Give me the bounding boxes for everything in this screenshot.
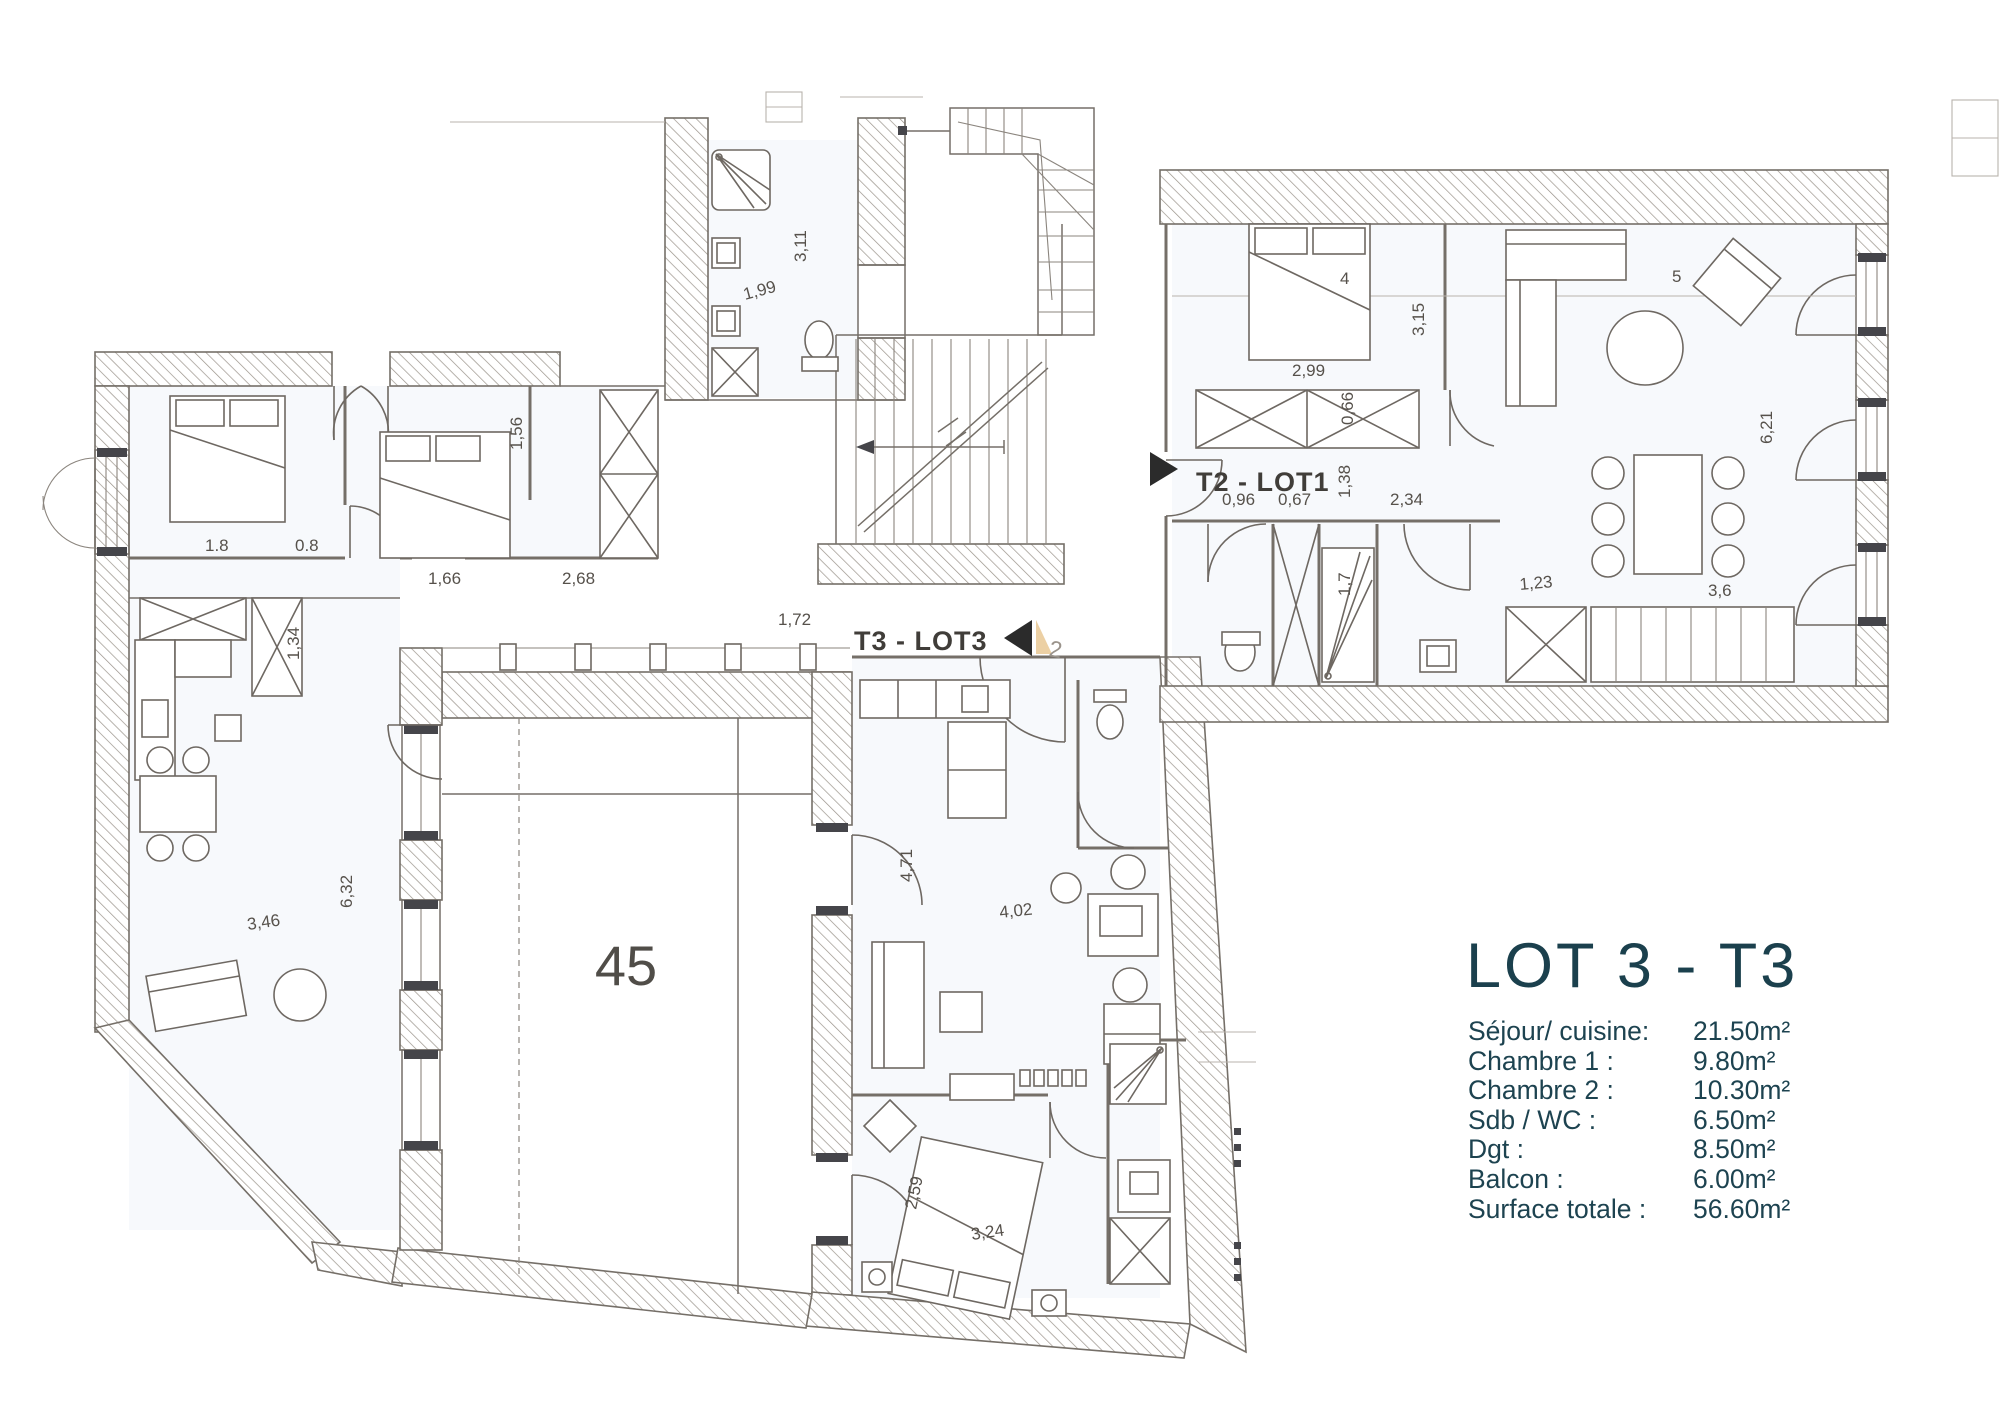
dim-bedroom1-b: 0.8 <box>295 536 319 555</box>
legend-row: Surface totale : 56.60m² <box>1468 1195 1868 1225</box>
dim-t2-bed-label: 4 <box>1340 269 1349 288</box>
hall-wardrobe <box>600 390 658 558</box>
t3-shower-room-furniture <box>1110 1044 1170 1284</box>
terrace-number: 45 <box>595 934 657 997</box>
legend-row-label: Balcon : <box>1468 1165 1693 1195</box>
dim-bedroom2-length: 1,56 <box>507 417 526 450</box>
window-terrace-wall <box>402 725 440 1150</box>
legend-row-value: 6.00m² <box>1693 1165 1863 1195</box>
dim-t3-living-length: 4,71 <box>897 849 916 882</box>
legend-row: Chambre 2 : 10.30m² <box>1468 1076 1868 1106</box>
dim-bedroom1-a: 1.8 <box>205 536 229 555</box>
legend-row: Chambre 1 : 9.80m² <box>1468 1047 1868 1077</box>
legend-row-label: Surface totale : <box>1468 1195 1693 1225</box>
legend-row-value: 56.60m² <box>1693 1195 1863 1225</box>
dim-t2-wardrobe: 0,66 <box>1338 392 1357 425</box>
dim-t2-shower: 1,7 <box>1335 572 1354 596</box>
legend-row-label: Chambre 2 : <box>1468 1076 1693 1106</box>
bedroom1-furniture <box>170 396 285 522</box>
dim-t2-room-length: 3,15 <box>1409 303 1428 336</box>
legend-row: Balcon : 6.00m² <box>1468 1165 1868 1195</box>
legend-title: LOT 3 - T3 <box>1466 930 1798 1002</box>
unit-label-t3-lot3: T3 - LOT3 <box>854 626 988 656</box>
dim-t2-d: 2,34 <box>1390 490 1423 509</box>
legend-table: Séjour/ cuisine: 21.50m² Chambre 1 : 9.8… <box>1468 1017 1868 1224</box>
dim-living-width: 3,6 <box>1708 581 1732 600</box>
dim-t2-hall: 1,23 <box>1519 572 1554 594</box>
dim-t2-c: 1,38 <box>1335 465 1354 498</box>
floor-plan-page: T2 - LOT1 T3 - LOT3 45 2 1,99 3,11 1.8 0… <box>0 0 2000 1423</box>
legend-row-value: 8.50m² <box>1693 1135 1863 1165</box>
dim-t2-a: 0,96 <box>1222 490 1255 509</box>
legend-row-value: 21.50m² <box>1693 1017 1863 1047</box>
dim-hall-c: 1,72 <box>778 610 811 629</box>
legend-row-label: Dgt : <box>1468 1135 1693 1165</box>
dim-bathroom-length: 3,11 <box>791 230 810 262</box>
dim-t2-b: 0,67 <box>1278 490 1311 509</box>
legend-row: Séjour/ cuisine: 21.50m² <box>1468 1017 1868 1047</box>
dim-t2-bed-width: 2,99 <box>1292 361 1325 380</box>
dim-hall-b: 2,68 <box>562 569 595 588</box>
dim-living-length: 6,21 <box>1757 411 1776 444</box>
legend-row-label: Chambre 1 : <box>1468 1047 1693 1077</box>
bedroom2-furniture <box>380 432 510 558</box>
dim-kitchen-length: 6,32 <box>337 875 356 908</box>
dim-sofa-label: 5 <box>1672 267 1681 286</box>
dim-t3-living-width: 4,02 <box>998 900 1033 922</box>
legend-row-label: Sdb / WC : <box>1468 1106 1693 1136</box>
t3-entry-arrow-icon <box>1004 620 1032 656</box>
legend-row-value: 6.50m² <box>1693 1106 1863 1136</box>
legend-row-value: 9.80m² <box>1693 1047 1863 1077</box>
terrace-railing <box>442 644 850 670</box>
dim-cabinet-height: 1,34 <box>284 627 303 660</box>
legend-row-label: Séjour/ cuisine: <box>1468 1017 1693 1047</box>
dim-hall-a: 1,66 <box>428 569 461 588</box>
winding-staircase <box>898 108 1094 335</box>
legend-row: Dgt : 8.50m² <box>1468 1135 1868 1165</box>
legend-row: Sdb / WC : 6.50m² <box>1468 1106 1868 1136</box>
legend-row-value: 10.30m² <box>1693 1076 1863 1106</box>
